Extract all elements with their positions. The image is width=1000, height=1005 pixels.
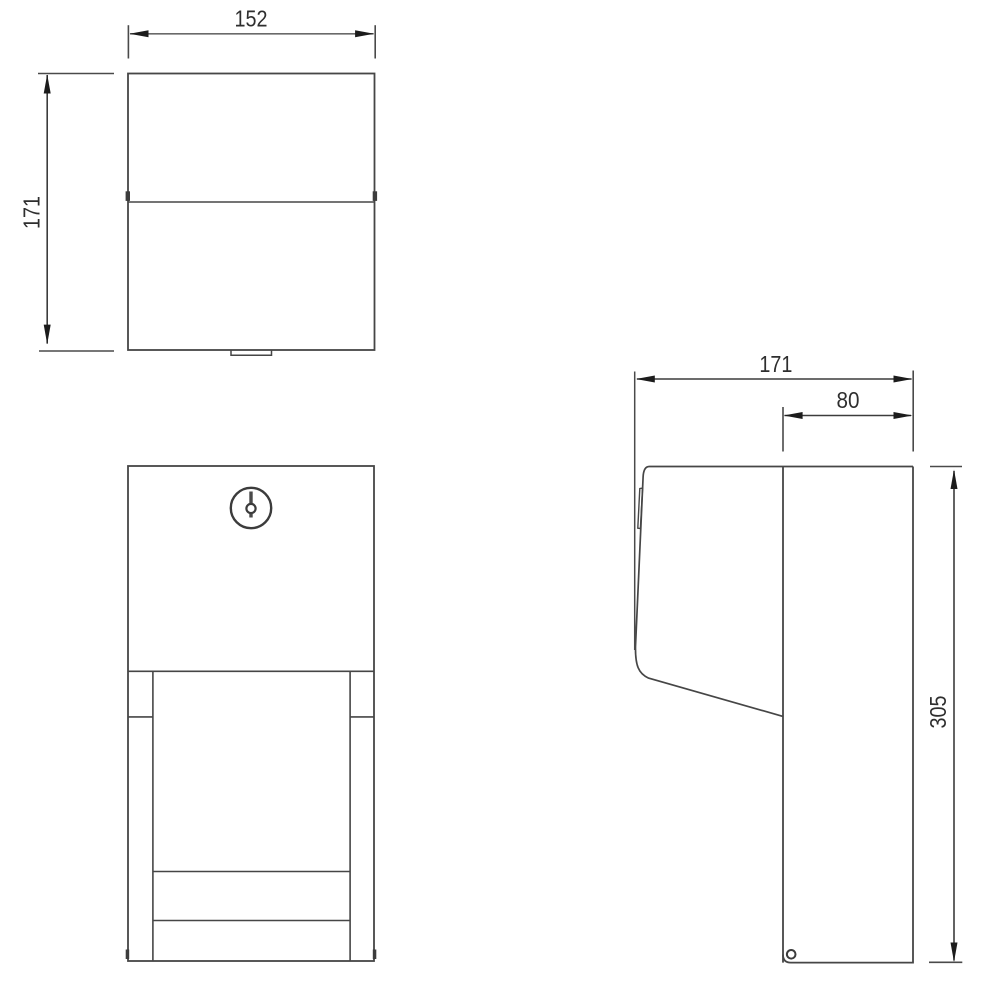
svg-text:152: 152	[235, 6, 268, 32]
svg-text:171: 171	[19, 196, 45, 229]
svg-text:171: 171	[759, 351, 792, 377]
svg-text:305: 305	[925, 696, 951, 729]
svg-text:80: 80	[837, 387, 860, 413]
